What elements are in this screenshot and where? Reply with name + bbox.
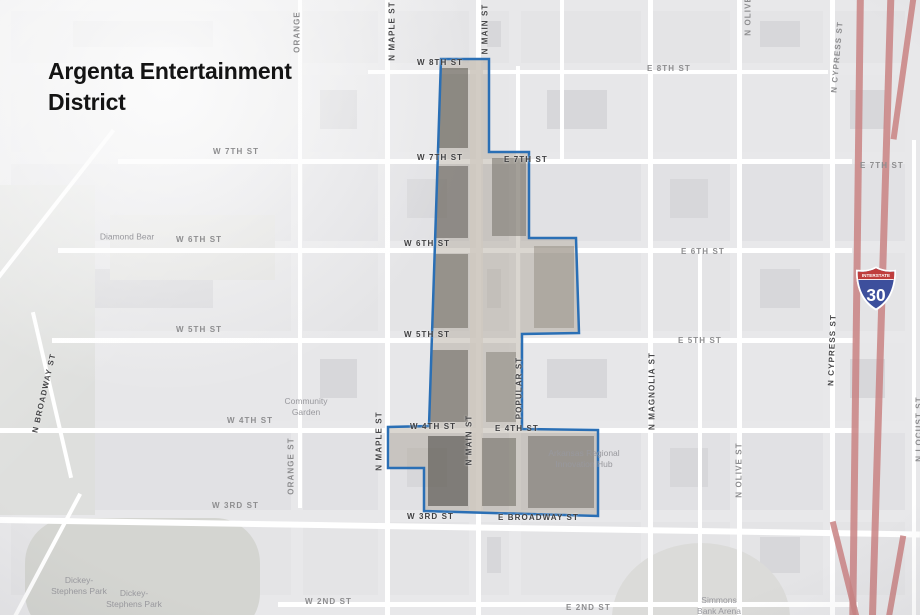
city-block <box>481 75 509 152</box>
n-maple-st-label: N MAPLE ST <box>375 411 384 470</box>
building <box>670 179 709 218</box>
building <box>487 269 501 308</box>
orange-label: ORANGE <box>293 11 302 53</box>
street-line-vertical <box>560 0 564 160</box>
poi-label-line: Bank Arena <box>697 606 741 615</box>
building <box>487 537 501 574</box>
street-line-horizontal <box>368 70 828 74</box>
city-block <box>653 164 730 241</box>
poi-label-line: Stephens Park <box>51 586 107 597</box>
dickey-stephens-park-poi-label: Dickey-Stephens Park <box>106 588 162 610</box>
e-broadway-st-label: E BROADWAY ST <box>498 513 579 522</box>
city-block <box>303 522 378 595</box>
n-locust-st-label: N LOCUST ST <box>915 396 920 461</box>
n-magnolia-st-label: N MAGNOLIA ST <box>648 352 657 430</box>
street-line-horizontal <box>52 338 855 343</box>
city-block <box>390 522 469 595</box>
building <box>407 179 447 218</box>
city-block <box>742 75 823 152</box>
w-5th-st-label: W 5TH ST <box>176 325 222 334</box>
dickey-stephens-park-poi-label: Dickey-Stephens Park <box>51 575 107 597</box>
city-block <box>303 11 378 63</box>
building <box>547 359 607 398</box>
e-4th-st-label: E 4TH ST <box>495 424 539 433</box>
building <box>320 359 358 398</box>
street-line-horizontal <box>58 248 852 253</box>
shield-number: 30 <box>866 285 885 305</box>
simmons-bank-arena-poi-label: SimmonsBank Arena <box>697 595 741 615</box>
city-block <box>481 253 509 331</box>
poi-label-line: Diamond Bear <box>100 231 154 242</box>
city-block <box>521 75 641 152</box>
building <box>760 269 801 308</box>
street-line-vertical <box>737 0 742 615</box>
map-canvas: W 8TH STE 8TH STW 7TH STW 7TH STE 7TH ST… <box>0 0 920 615</box>
city-block <box>481 522 509 595</box>
building <box>760 21 801 47</box>
city-block <box>653 253 730 331</box>
title-line-2: District <box>48 87 292 118</box>
arkansas-regional-innovation-hub-poi-label: Arkansas RegionalInnovation Hub <box>548 448 619 470</box>
poi-label-line: Stephens Park <box>106 599 162 610</box>
city-block <box>390 164 469 241</box>
n-maple-st-label: N MAPLE ST <box>388 1 397 60</box>
city-block <box>521 253 641 331</box>
city-block <box>835 164 905 241</box>
e-7th-st-label: E 7TH ST <box>860 161 904 170</box>
e-8th-st-label: E 8TH ST <box>647 64 691 73</box>
city-block <box>481 164 509 241</box>
city-block <box>653 75 730 152</box>
w-4th-st-label: W 4TH ST <box>227 416 273 425</box>
e-5th-st-label: E 5TH ST <box>678 336 722 345</box>
w-7th-st-label: W 7TH ST <box>213 147 259 156</box>
n-main-st-label: N MAIN ST <box>465 415 474 466</box>
city-block <box>835 343 905 421</box>
w-8th-st-label: W 8TH ST <box>417 58 463 67</box>
n-olive-st-label: N OLIVE ST <box>744 0 753 36</box>
city-block <box>742 253 823 331</box>
city-block <box>390 253 469 331</box>
city-block <box>742 164 823 241</box>
city-block <box>521 11 641 63</box>
page-title: Argenta Entertainment District <box>48 56 292 118</box>
w-2nd-st-label: W 2ND ST <box>305 597 352 606</box>
poi-label-line: Arkansas Regional <box>548 448 619 459</box>
diamond-bear-poi-label: Diamond Bear <box>100 231 154 242</box>
city-block <box>521 433 641 510</box>
e-7th-st-label: E 7TH ST <box>504 155 548 164</box>
city-block <box>653 343 730 421</box>
building <box>320 90 358 129</box>
street-line-vertical <box>648 0 653 615</box>
city-block <box>390 433 469 510</box>
community-garden-poi-label: CommunityGarden <box>285 396 328 418</box>
riverfront-area <box>0 185 95 515</box>
poi-label-line: Dickey- <box>106 588 162 599</box>
street-line-vertical <box>698 250 702 615</box>
city-block <box>303 433 378 510</box>
w-7th-st-label: W 7TH ST <box>417 153 463 162</box>
city-block <box>742 343 823 421</box>
poi-label-line: Simmons <box>697 595 741 606</box>
orange-st-label: ORANGE ST <box>287 437 296 494</box>
w-4th-st-label: W 4TH ST <box>410 422 456 431</box>
w-5th-st-label: W 5TH ST <box>404 330 450 339</box>
building <box>73 21 213 47</box>
street-line-vertical <box>476 0 481 615</box>
city-block <box>835 11 905 63</box>
n-main-st-label: N MAIN ST <box>481 4 490 55</box>
e-6th-st-label: E 6TH ST <box>681 247 725 256</box>
city-block <box>521 343 641 421</box>
poi-label-line: Garden <box>285 407 328 418</box>
w-3rd-st-label: W 3RD ST <box>212 501 259 510</box>
city-block <box>481 433 509 510</box>
building <box>670 448 709 487</box>
poi-label-line: Community <box>285 396 328 407</box>
city-block <box>521 164 641 241</box>
shield-top-text: INTERSTATE <box>862 273 890 278</box>
e-2nd-st-label: E 2ND ST <box>566 603 611 612</box>
building <box>407 448 447 487</box>
city-block <box>390 343 469 421</box>
poi-label-line: Innovation Hub <box>548 459 619 470</box>
w-6th-st-label: W 6TH ST <box>176 235 222 244</box>
city-block <box>835 433 905 510</box>
city-block <box>742 11 823 63</box>
interstate-30-shield: INTERSTATE 30 <box>855 265 897 312</box>
city-block <box>653 11 730 63</box>
street-line-vertical <box>385 0 390 615</box>
city-block <box>303 75 378 152</box>
city-block <box>303 253 378 331</box>
city-block <box>390 75 469 152</box>
w-3rd-st-label: W 3RD ST <box>407 512 454 521</box>
city-block <box>742 433 823 510</box>
city-block <box>390 11 469 63</box>
city-block <box>653 433 730 510</box>
street-line-vertical <box>912 140 916 615</box>
city-block <box>303 164 378 241</box>
street-line-vertical <box>298 0 302 508</box>
w-6th-st-label: W 6TH ST <box>404 239 450 248</box>
n-olive-st-label: N OLIVE ST <box>735 442 744 497</box>
title-line-1: Argenta Entertainment <box>48 56 292 87</box>
popular-st-label: POPULAR ST <box>515 357 524 420</box>
city-block <box>481 343 509 421</box>
building <box>547 90 607 129</box>
poi-label-line: Dickey- <box>51 575 107 586</box>
